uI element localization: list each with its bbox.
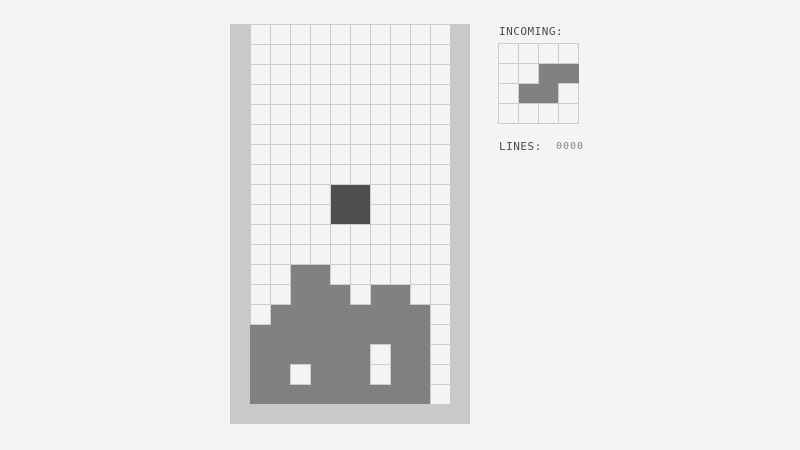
stack-block xyxy=(410,364,431,385)
stack-block xyxy=(410,344,431,365)
grid-cell xyxy=(250,124,271,145)
stack-block xyxy=(310,284,331,305)
grid-cell xyxy=(430,324,450,345)
grid-cell xyxy=(330,224,351,245)
preview-cell xyxy=(498,43,519,64)
grid-cell xyxy=(270,124,291,145)
grid-cell xyxy=(410,44,431,65)
grid-cell xyxy=(390,244,411,265)
grid-cell xyxy=(270,244,291,265)
grid-cell xyxy=(270,204,291,225)
game-screen: INCOMING: LINES: 0000 xyxy=(0,0,800,450)
stack-block xyxy=(290,344,311,365)
grid-cell xyxy=(330,64,351,85)
grid-cell xyxy=(250,184,271,205)
grid-cell xyxy=(410,224,431,245)
stack-block xyxy=(330,304,351,325)
stack-block xyxy=(390,304,411,325)
grid-cell xyxy=(370,224,391,245)
grid-cell xyxy=(370,244,391,265)
stack-block xyxy=(310,344,331,365)
active-piece-block xyxy=(330,184,351,205)
grid-cell xyxy=(330,24,351,45)
stack-block xyxy=(250,324,271,345)
stack-block xyxy=(290,284,311,305)
grid-cell xyxy=(390,104,411,125)
grid-cell xyxy=(370,124,391,145)
preview-cell xyxy=(498,83,519,104)
grid-cell xyxy=(310,224,331,245)
grid-cell xyxy=(270,24,291,45)
active-piece-block xyxy=(350,184,371,205)
preview-cell xyxy=(518,43,539,64)
grid-cell xyxy=(290,244,311,265)
grid-cell xyxy=(290,104,311,125)
lines-counter: 0000 xyxy=(556,141,584,152)
stack-block xyxy=(330,344,351,365)
stack-block xyxy=(270,384,291,404)
grid-cell xyxy=(430,184,450,205)
preview-piece-block xyxy=(558,63,579,84)
grid-cell xyxy=(410,104,431,125)
grid-cell xyxy=(430,84,450,105)
stack-block xyxy=(390,324,411,345)
grid-cell xyxy=(330,244,351,265)
grid-cell xyxy=(290,44,311,65)
stack-block xyxy=(330,324,351,345)
grid-cell xyxy=(390,24,411,45)
grid-cell xyxy=(370,144,391,165)
grid-cell xyxy=(390,144,411,165)
grid-cell xyxy=(310,144,331,165)
grid-cell xyxy=(290,24,311,45)
grid-cell xyxy=(350,44,371,65)
grid-cell xyxy=(390,224,411,245)
grid-cell xyxy=(290,224,311,245)
stack-block xyxy=(370,324,391,345)
stack-block xyxy=(310,384,331,404)
preview-piece-block xyxy=(538,83,559,104)
preview-cell xyxy=(518,63,539,84)
grid-cell xyxy=(270,184,291,205)
stack-block xyxy=(370,304,391,325)
grid-cell xyxy=(430,44,450,65)
grid-cell xyxy=(370,84,391,105)
stack-block xyxy=(310,304,331,325)
grid-cell xyxy=(390,184,411,205)
wall-left xyxy=(230,24,250,424)
stack-block xyxy=(270,364,291,385)
grid-cell xyxy=(370,104,391,125)
grid-cell xyxy=(410,264,431,285)
grid-cell xyxy=(330,164,351,185)
grid-cell xyxy=(430,384,450,404)
incoming-preview-grid xyxy=(498,43,579,124)
grid-cell xyxy=(290,364,311,385)
stack-block xyxy=(350,384,371,404)
grid-cell xyxy=(250,104,271,125)
grid-cell xyxy=(250,44,271,65)
grid-cell xyxy=(350,164,371,185)
preview-cell xyxy=(518,103,539,124)
grid-cell xyxy=(290,204,311,225)
grid-cell xyxy=(350,84,371,105)
grid-cell xyxy=(310,164,331,185)
grid-cell xyxy=(390,84,411,105)
preview-cell xyxy=(538,103,559,124)
grid-cell xyxy=(290,64,311,85)
grid-cell xyxy=(350,64,371,85)
grid-cell xyxy=(370,264,391,285)
grid-cell xyxy=(330,44,351,65)
grid-cell xyxy=(370,344,391,365)
stack-block xyxy=(330,284,351,305)
grid-cell xyxy=(410,164,431,185)
stack-block xyxy=(350,304,371,325)
grid-cell xyxy=(270,224,291,245)
grid-cell xyxy=(370,204,391,225)
grid-cell xyxy=(430,64,450,85)
stack-block xyxy=(250,364,271,385)
grid-cell xyxy=(290,124,311,145)
stack-block xyxy=(290,304,311,325)
grid-cell xyxy=(330,264,351,285)
grid-cell xyxy=(270,84,291,105)
grid-cell xyxy=(290,84,311,105)
grid-cell xyxy=(310,24,331,45)
stack-block xyxy=(310,324,331,345)
grid-cell xyxy=(290,164,311,185)
grid-cell xyxy=(410,84,431,105)
grid-cell xyxy=(410,184,431,205)
grid-cell xyxy=(310,244,331,265)
grid-cell xyxy=(390,124,411,145)
grid-cell xyxy=(370,44,391,65)
grid-cell xyxy=(350,124,371,145)
playfield-grid[interactable] xyxy=(250,24,450,404)
grid-cell xyxy=(370,64,391,85)
grid-cell xyxy=(250,204,271,225)
stack-block xyxy=(390,344,411,365)
grid-cell xyxy=(430,264,450,285)
grid-cell xyxy=(410,64,431,85)
active-piece-block xyxy=(350,204,371,225)
stack-block xyxy=(390,364,411,385)
grid-cell xyxy=(430,204,450,225)
stack-block xyxy=(410,384,431,404)
grid-cell xyxy=(250,224,271,245)
grid-cell xyxy=(410,124,431,145)
preview-piece-block xyxy=(518,83,539,104)
grid-cell xyxy=(370,184,391,205)
wall-right xyxy=(450,24,470,424)
grid-cell xyxy=(430,124,450,145)
grid-cell xyxy=(250,24,271,45)
grid-cell xyxy=(270,284,291,305)
grid-cell xyxy=(310,84,331,105)
grid-cell xyxy=(410,284,431,305)
grid-cell xyxy=(270,144,291,165)
grid-cell xyxy=(430,164,450,185)
grid-cell xyxy=(410,24,431,45)
grid-cell xyxy=(310,44,331,65)
grid-cell xyxy=(310,124,331,145)
stack-block xyxy=(350,324,371,345)
active-piece-block xyxy=(330,204,351,225)
stack-block xyxy=(370,284,391,305)
stack-block xyxy=(270,344,291,365)
stack-block xyxy=(410,324,431,345)
lines-label: LINES: xyxy=(499,140,542,153)
preview-cell xyxy=(498,103,519,124)
grid-cell xyxy=(270,264,291,285)
preview-cell xyxy=(538,43,559,64)
grid-cell xyxy=(430,224,450,245)
grid-cell xyxy=(390,164,411,185)
grid-cell xyxy=(350,264,371,285)
stack-block xyxy=(350,344,371,365)
grid-cell xyxy=(250,164,271,185)
grid-cell xyxy=(270,64,291,85)
incoming-label: INCOMING: xyxy=(499,25,563,38)
stack-block xyxy=(270,304,291,325)
stack-block xyxy=(270,324,291,345)
preview-cell xyxy=(558,83,579,104)
stack-block xyxy=(410,304,431,325)
grid-cell xyxy=(390,264,411,285)
grid-cell xyxy=(250,264,271,285)
grid-cell xyxy=(430,244,450,265)
playfield xyxy=(230,24,470,424)
stack-block xyxy=(390,284,411,305)
grid-cell xyxy=(370,24,391,45)
grid-cell xyxy=(290,184,311,205)
grid-cell xyxy=(370,364,391,385)
stack-block xyxy=(330,364,351,385)
stack-block xyxy=(290,264,311,285)
grid-cell xyxy=(250,144,271,165)
grid-cell xyxy=(430,144,450,165)
grid-cell xyxy=(270,44,291,65)
grid-cell xyxy=(310,204,331,225)
grid-cell xyxy=(430,104,450,125)
preview-piece-block xyxy=(538,63,559,84)
stack-block xyxy=(310,264,331,285)
grid-cell xyxy=(330,144,351,165)
grid-cell xyxy=(250,64,271,85)
grid-cell xyxy=(330,84,351,105)
grid-cell xyxy=(270,104,291,125)
stack-block xyxy=(390,384,411,404)
stack-block xyxy=(350,364,371,385)
grid-cell xyxy=(330,124,351,145)
grid-cell xyxy=(350,144,371,165)
stack-block xyxy=(290,384,311,404)
grid-cell xyxy=(350,104,371,125)
grid-cell xyxy=(290,144,311,165)
stack-block xyxy=(370,384,391,404)
preview-cell xyxy=(558,43,579,64)
stack-block xyxy=(250,384,271,404)
grid-cell xyxy=(390,44,411,65)
stack-block xyxy=(290,324,311,345)
grid-cell xyxy=(310,64,331,85)
grid-cell xyxy=(430,304,450,325)
grid-cell xyxy=(390,204,411,225)
stack-block xyxy=(330,384,351,404)
grid-cell xyxy=(250,284,271,305)
grid-cell xyxy=(250,84,271,105)
grid-cell xyxy=(250,304,271,325)
grid-cell xyxy=(430,24,450,45)
grid-cell xyxy=(250,244,271,265)
grid-cell xyxy=(350,284,371,305)
grid-cell xyxy=(350,24,371,45)
grid-cell xyxy=(370,164,391,185)
wall-bottom xyxy=(230,404,470,424)
grid-cell xyxy=(410,144,431,165)
grid-cell xyxy=(410,244,431,265)
grid-cell xyxy=(270,164,291,185)
grid-cell xyxy=(330,104,351,125)
preview-cell xyxy=(558,103,579,124)
grid-cell xyxy=(430,284,450,305)
grid-cell xyxy=(390,64,411,85)
grid-cell xyxy=(310,104,331,125)
grid-cell xyxy=(430,364,450,385)
stack-block xyxy=(250,344,271,365)
stack-block xyxy=(310,364,331,385)
grid-cell xyxy=(410,204,431,225)
preview-cell xyxy=(498,63,519,84)
grid-cell xyxy=(430,344,450,365)
grid-cell xyxy=(310,184,331,205)
grid-cell xyxy=(350,244,371,265)
grid-cell xyxy=(350,224,371,245)
